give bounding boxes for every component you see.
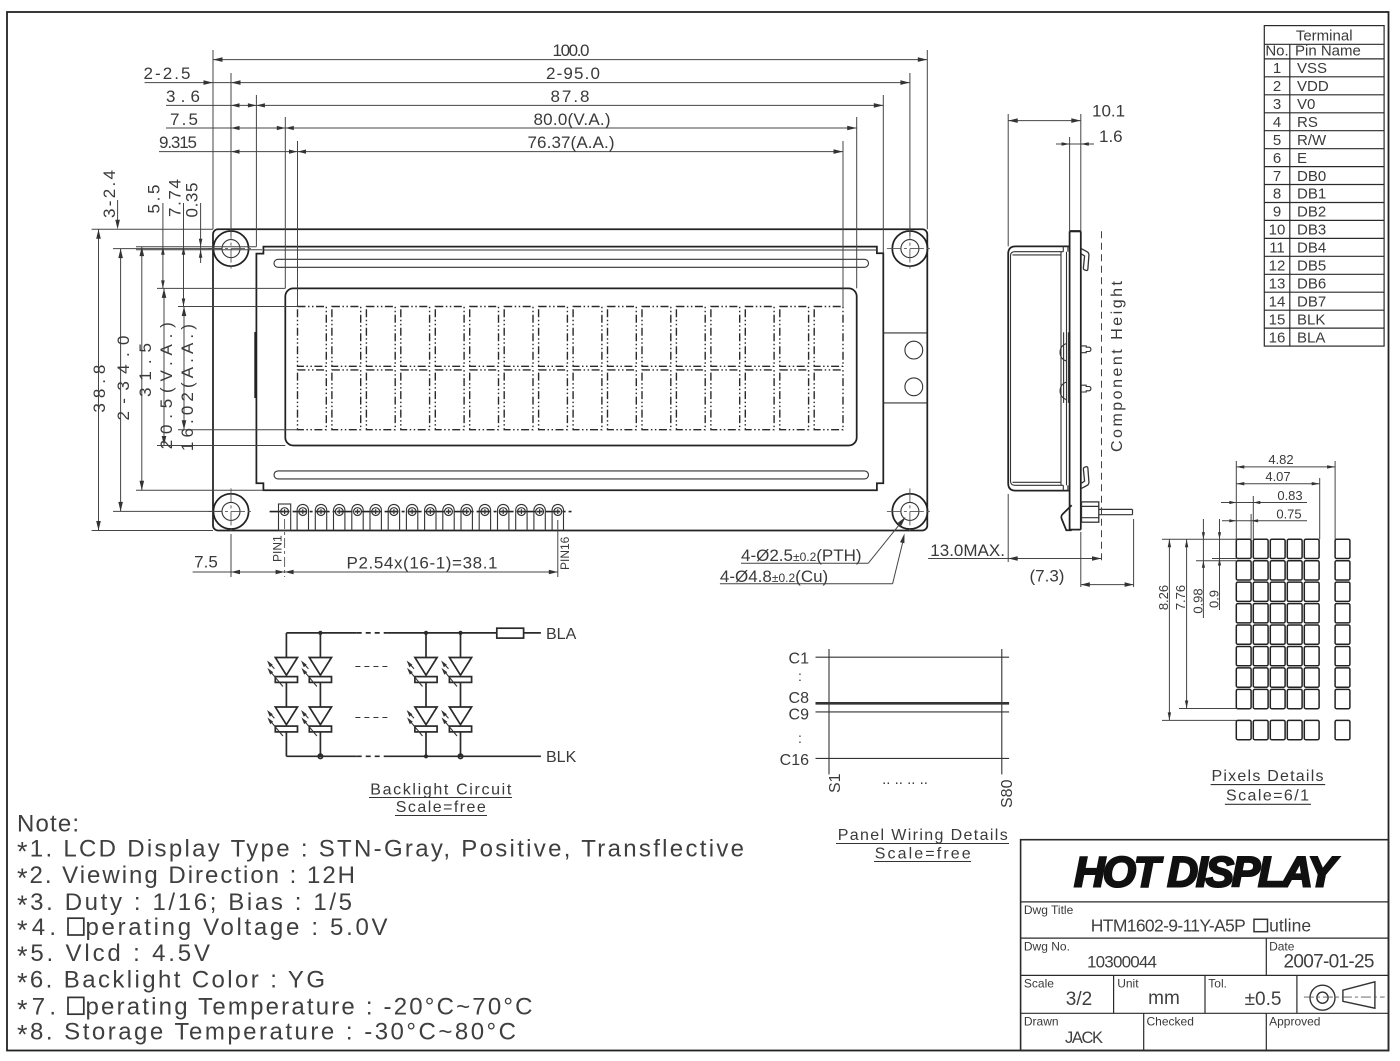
svg-text:Scale=6/1: Scale=6/1 [1226, 788, 1309, 805]
svg-text:.. .. .. ..: .. .. .. .. [882, 771, 928, 788]
svg-text:utline: utline [1269, 916, 1311, 936]
svg-text:4: 4 [1273, 114, 1281, 131]
svg-text:2-95.0: 2-95.0 [546, 64, 600, 83]
svg-text:4.07: 4.07 [1265, 469, 1290, 484]
svg-text:DB2: DB2 [1297, 204, 1326, 221]
svg-text:15: 15 [1269, 311, 1286, 328]
svg-text:13: 13 [1269, 276, 1286, 293]
svg-text:(7.3): (7.3) [1030, 567, 1065, 586]
svg-text:DB7: DB7 [1297, 293, 1326, 310]
svg-text:*4.: *4. [17, 914, 56, 945]
svg-text:S1: S1 [827, 773, 844, 793]
svg-text:Pixels Details: Pixels Details [1212, 768, 1324, 785]
svg-text:3: 3 [1273, 96, 1281, 113]
svg-text:Approved: Approved [1269, 1015, 1320, 1029]
svg-text:RS: RS [1297, 114, 1318, 131]
svg-text:3-2.4: 3-2.4 [100, 170, 119, 218]
svg-text:11: 11 [1269, 240, 1285, 257]
svg-text:S80: S80 [999, 779, 1016, 808]
svg-text:Pin Name: Pin Name [1295, 43, 1361, 60]
svg-text:PIN1: PIN1 [271, 535, 285, 562]
svg-text:1: 1 [1273, 60, 1281, 77]
svg-text:0.83: 0.83 [1277, 488, 1302, 503]
svg-text:DB6: DB6 [1297, 276, 1326, 293]
svg-text:7.5: 7.5 [194, 553, 218, 572]
svg-text:Tol.: Tol. [1208, 977, 1227, 991]
svg-text:DB3: DB3 [1297, 222, 1326, 239]
svg-text:2-2.5: 2-2.5 [144, 64, 191, 83]
svg-text:BLK: BLK [546, 749, 577, 766]
svg-text::: : [798, 668, 802, 684]
svg-text:3/2: 3/2 [1066, 989, 1092, 1010]
svg-text:mm: mm [1148, 988, 1180, 1009]
svg-text:1.6: 1.6 [1099, 127, 1123, 146]
svg-text:100.0: 100.0 [553, 41, 590, 60]
svg-text:6: 6 [1273, 150, 1281, 167]
svg-text:38.8: 38.8 [90, 365, 109, 413]
svg-text:31.5: 31.5 [136, 343, 155, 397]
svg-text:10: 10 [1269, 222, 1286, 239]
svg-text:0.35: 0.35 [183, 183, 202, 218]
svg-text:JACK: JACK [1065, 1029, 1103, 1047]
svg-text:VSS: VSS [1297, 60, 1327, 77]
svg-text:16.02(A.A.): 16.02(A.A.) [178, 324, 197, 451]
svg-text:perating Temperature : -20°C~7: perating Temperature : -20°C~70°C [86, 993, 533, 1020]
svg-text:BLK: BLK [1297, 311, 1325, 328]
svg-text:HTM1602-9-11Y-A5P: HTM1602-9-11Y-A5P [1091, 916, 1246, 936]
svg-text:PIN16: PIN16 [558, 536, 572, 570]
svg-text:DB5: DB5 [1297, 258, 1326, 275]
svg-text:Note:: Note: [17, 811, 79, 838]
svg-text:Dwg No.: Dwg No. [1024, 940, 1070, 954]
svg-text:0.75: 0.75 [1276, 506, 1301, 521]
svg-text:DB4: DB4 [1297, 240, 1326, 257]
svg-text:16: 16 [1269, 329, 1286, 346]
svg-text:0.98: 0.98 [1190, 588, 1205, 613]
svg-text:P2.54x(16-1)=38.1: P2.54x(16-1)=38.1 [347, 554, 498, 573]
svg-text:20.5(V.A.): 20.5(V.A.) [157, 322, 176, 449]
svg-text:5: 5 [1273, 132, 1281, 149]
svg-text:Scale: Scale [1024, 977, 1054, 991]
svg-text:4-Ø4.8±0.2(Cu): 4-Ø4.8±0.2(Cu) [720, 567, 828, 586]
svg-text:8: 8 [1273, 186, 1281, 203]
svg-text:C16: C16 [780, 752, 809, 769]
svg-text:9: 9 [1273, 204, 1281, 221]
svg-text:±0.5: ±0.5 [1245, 989, 1282, 1010]
svg-text:E: E [1297, 150, 1307, 167]
svg-text:Scale=free: Scale=free [875, 846, 971, 863]
svg-text:76.37(A.A.): 76.37(A.A.) [528, 133, 615, 152]
svg-text:0.9: 0.9 [1206, 590, 1221, 608]
svg-text:87.8: 87.8 [551, 87, 590, 106]
svg-text:7.5: 7.5 [170, 110, 198, 129]
svg-text:4-Ø2.5±0.2(PTH): 4-Ø2.5±0.2(PTH) [741, 546, 862, 565]
svg-text:BLA: BLA [1297, 329, 1325, 346]
svg-text:DB1: DB1 [1297, 186, 1326, 203]
svg-text:No.: No. [1265, 43, 1288, 60]
svg-text:*7.: *7. [17, 993, 56, 1024]
svg-text::: : [798, 730, 802, 746]
svg-text:Unit: Unit [1117, 977, 1139, 991]
svg-text:*2. Viewing Direction : 12H: *2. Viewing Direction : 12H [17, 862, 355, 893]
svg-text:*6. Backlight Color : YG: *6. Backlight Color : YG [17, 966, 325, 997]
svg-text:*8. Storage Temperature : -30°: *8. Storage Temperature : -30°C~80°C [17, 1019, 516, 1050]
svg-text:VDD: VDD [1297, 78, 1329, 95]
svg-text:8.26: 8.26 [1156, 585, 1171, 610]
svg-text:13.0MAX.: 13.0MAX. [930, 541, 1005, 560]
svg-text:DB0: DB0 [1297, 168, 1326, 185]
svg-text:perating Voltage : 5.0V: perating Voltage : 5.0V [86, 914, 388, 941]
svg-text:BLA: BLA [546, 626, 577, 643]
svg-text:C8: C8 [789, 690, 810, 707]
svg-text:HOT DISPLAY: HOT DISPLAY [1074, 849, 1339, 897]
svg-text:7: 7 [1273, 168, 1281, 185]
svg-text:V0: V0 [1297, 96, 1315, 113]
svg-text:4.82: 4.82 [1268, 452, 1293, 467]
svg-text:Component Height: Component Height [1109, 280, 1126, 452]
svg-text:10.1: 10.1 [1092, 102, 1125, 121]
svg-text:2-34.0: 2-34.0 [114, 336, 133, 421]
svg-text:12: 12 [1269, 258, 1286, 275]
svg-text:10300044: 10300044 [1087, 953, 1157, 972]
svg-text:2007-01-25: 2007-01-25 [1284, 952, 1375, 973]
svg-text:9.315: 9.315 [159, 133, 197, 152]
svg-text:3.6: 3.6 [166, 87, 200, 106]
svg-text:C9: C9 [789, 707, 810, 724]
svg-text:14: 14 [1269, 293, 1286, 310]
svg-text:80.0(V.A.): 80.0(V.A.) [534, 110, 611, 129]
svg-text:Panel Wiring Details: Panel Wiring Details [838, 827, 1008, 844]
svg-text:R/W: R/W [1297, 132, 1327, 149]
svg-text:Scale=free: Scale=free [396, 799, 486, 816]
svg-text:7.76: 7.76 [1173, 585, 1188, 610]
svg-text:2: 2 [1273, 78, 1281, 95]
svg-text:Checked: Checked [1147, 1015, 1194, 1029]
svg-text:Dwg Title: Dwg Title [1024, 903, 1074, 917]
svg-text:Backlight Circuit: Backlight Circuit [370, 782, 512, 799]
svg-text:5.5: 5.5 [145, 185, 164, 214]
svg-text:Drawn: Drawn [1024, 1015, 1059, 1029]
svg-text:C1: C1 [789, 651, 810, 668]
